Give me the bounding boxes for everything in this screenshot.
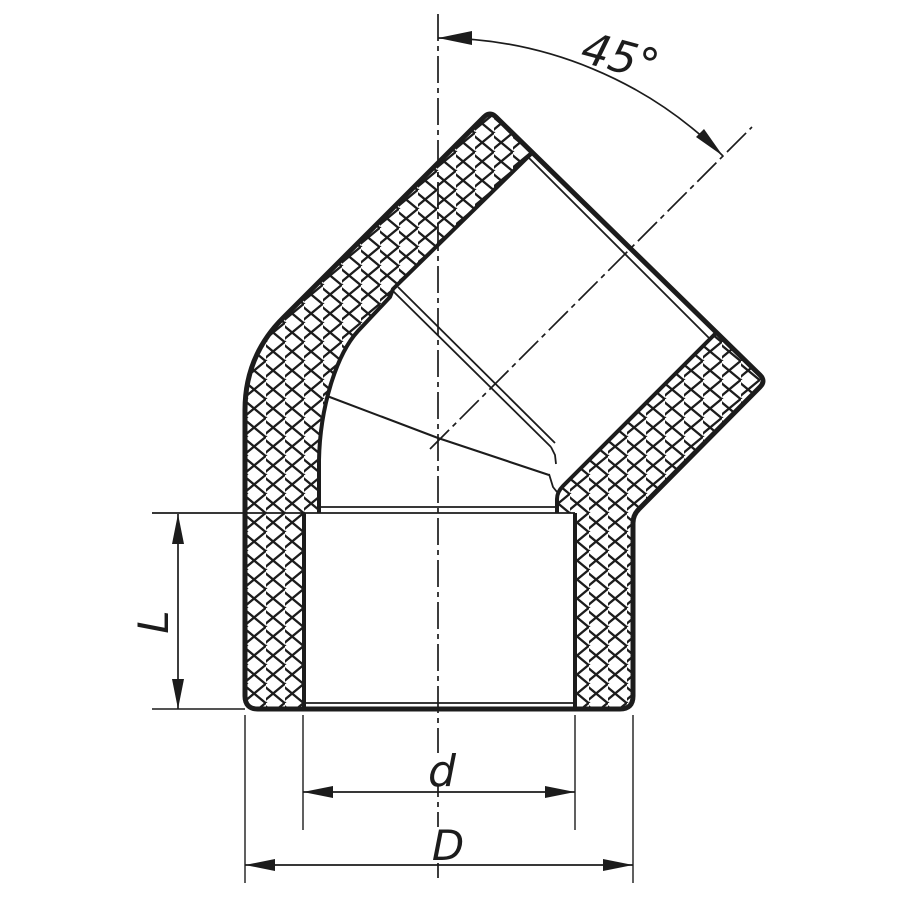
shoulder-step-edge bbox=[549, 447, 557, 492]
socket-depth-label: L bbox=[129, 610, 178, 633]
dimension-d-arrowhead-right bbox=[545, 786, 575, 798]
mouth-chamfer-line bbox=[529, 158, 710, 339]
inner-diameter-label: d bbox=[428, 746, 457, 797]
dimension-L-arrowhead-bottom bbox=[172, 679, 184, 709]
angled-socket-shoulder-chamfer bbox=[398, 287, 555, 443]
elbow-45-sectional-drawing: 45° L d D bbox=[0, 0, 900, 900]
dimension-d-arrowhead-left bbox=[303, 786, 333, 798]
angle-label: 45° bbox=[576, 23, 665, 92]
dimension-L-arrowhead-top bbox=[172, 514, 184, 544]
angle-arc-arrowhead-left bbox=[438, 31, 472, 45]
angle-arc-arrowhead-right bbox=[696, 129, 723, 156]
dimension-D-arrowhead-left bbox=[245, 859, 275, 871]
outer-diameter-label: D bbox=[432, 821, 464, 870]
technical-drawing-canvas: 45° L d D bbox=[0, 0, 900, 900]
dimension-D-arrowhead-right bbox=[603, 859, 633, 871]
angled-socket-shoulder-line bbox=[393, 291, 551, 447]
